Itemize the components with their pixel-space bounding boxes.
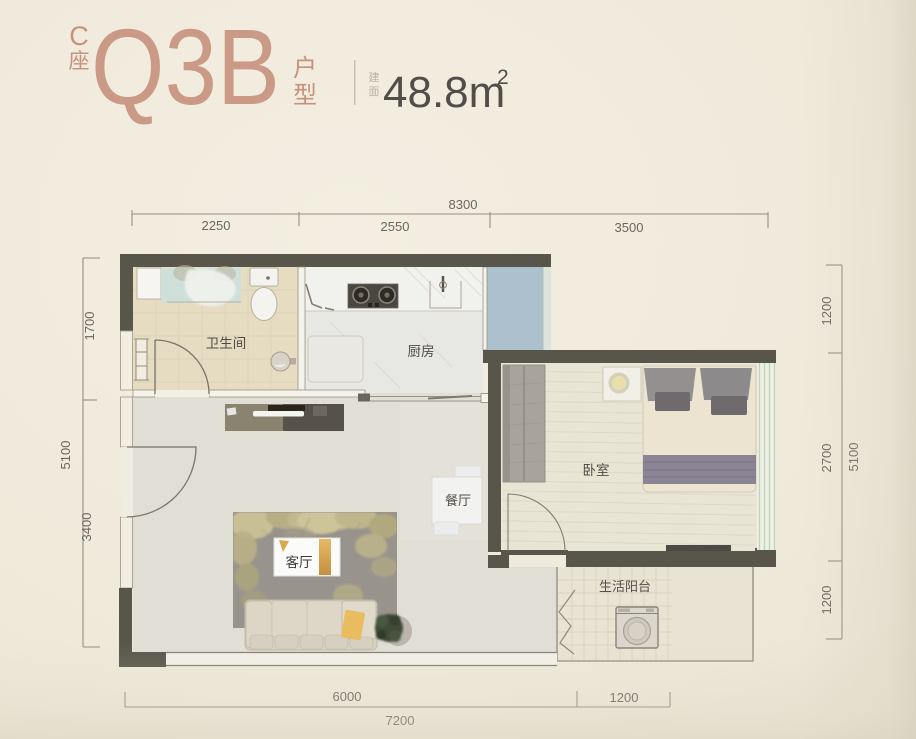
svg-text:1700: 1700 <box>82 312 97 341</box>
svg-text:8300: 8300 <box>449 197 478 212</box>
svg-text:厨房: 厨房 <box>408 344 435 359</box>
svg-text:餐厅: 餐厅 <box>445 493 471 508</box>
svg-text:卫生间: 卫生间 <box>206 336 247 351</box>
svg-text:48.8m: 48.8m <box>383 68 505 117</box>
svg-text:面: 面 <box>369 86 380 98</box>
svg-text:5100: 5100 <box>58 441 73 470</box>
svg-text:户: 户 <box>293 55 317 82</box>
svg-text:建: 建 <box>369 70 380 84</box>
svg-text:2250: 2250 <box>202 218 231 233</box>
svg-text:3400: 3400 <box>79 513 94 542</box>
svg-text:客厅: 客厅 <box>286 554 313 570</box>
svg-text:3500: 3500 <box>615 220 644 235</box>
svg-text:型: 型 <box>293 82 317 109</box>
svg-text:座: 座 <box>69 50 90 73</box>
svg-text:卧室: 卧室 <box>583 462 610 478</box>
svg-text:生活阳台: 生活阳台 <box>599 579 651 594</box>
svg-text:2550: 2550 <box>381 219 410 234</box>
svg-text:Q3B: Q3B <box>91 6 280 127</box>
svg-text:2: 2 <box>497 66 509 89</box>
svg-text:C: C <box>69 21 89 51</box>
